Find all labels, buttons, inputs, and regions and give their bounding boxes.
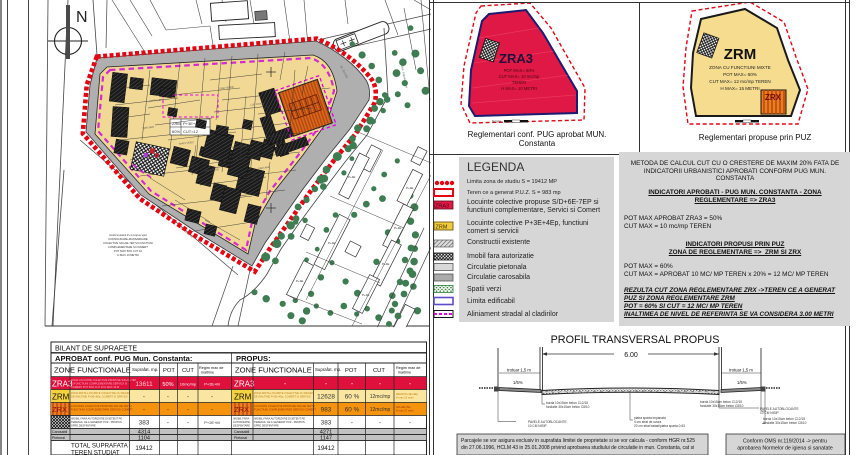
svg-text:Pietonal: Pietonal (234, 436, 247, 440)
svg-text:trotuar 1,5 m: trotuar 1,5 m (729, 368, 753, 373)
svg-text:ZONA CU FUNCTIUNI MIXTE: ZONA CU FUNCTIUNI MIXTE (709, 65, 771, 70)
svg-text:REGIM P+3E+4Ep: REGIM P+3E+4Ep (396, 392, 418, 396)
svg-text:ZONE FUNCTIONALE: ZONE FUNCTIONALE (54, 366, 131, 375)
svg-text:ZRM: ZRM (234, 393, 252, 402)
svg-text:P+2E+M: P+2E+M (204, 420, 220, 425)
svg-text:COMPLEMENTARE SI COMERT: COMPLEMENTARE SI COMERT (108, 245, 148, 249)
svg-text:PROFIL TRANSVERSAL PROPUS: PROFIL TRANSVERSAL PROPUS (551, 334, 720, 346)
svg-text:DE INALTIME P+3E+4Ep, COMERT S: DE INALTIME P+3E+4Ep, COMERT SI SERVICII (71, 395, 128, 399)
svg-text:Suprafat. mp.: Suprafat. mp. (315, 367, 341, 372)
svg-text:-: - (351, 420, 353, 427)
svg-text:N: N (76, 9, 88, 26)
svg-text:ZRM: ZRM (172, 121, 181, 126)
svg-text:P+4E: P+4E (328, 241, 335, 245)
svg-text:APROBAT conf. PUG Mun. Constan: APROBAT conf. PUG Mun. Constanta: (55, 354, 192, 363)
svg-text:TERENUL CE A GENERAT PUZ - PRO: TERENUL CE A GENERAT PUZ - PROPUS (254, 420, 305, 424)
svg-text:TEREN: TEREN (512, 80, 526, 85)
svg-text:ZRX: ZRX (234, 405, 249, 414)
svg-text:-: - (143, 407, 145, 414)
svg-text:SPRE DESFIINTARE: SPRE DESFIINTARE (254, 424, 279, 428)
svg-text:inaltime: inaltime (201, 371, 214, 375)
svg-text:ZRA3: ZRA3 (435, 204, 449, 210)
svg-text:P+4E: P+4E (394, 226, 401, 230)
svg-text:13611: 13611 (135, 381, 153, 388)
svg-text:P+2E+M: P+2E+M (204, 382, 220, 387)
svg-text:H MAX= 10 METRI: H MAX= 10 METRI (501, 86, 537, 91)
svg-text:6.00: 6.00 (624, 352, 638, 359)
svg-text:-: - (187, 420, 189, 427)
svg-text:-: - (187, 407, 189, 414)
svg-text:FUNCTIUNI COMPLEMENTARE SERVIC: FUNCTIUNI COMPLEMENTARE SERVICII COMERT (254, 408, 316, 412)
svg-text:10mc/mp: 10mc/mp (180, 382, 197, 387)
svg-text:50%: 50% (162, 382, 173, 388)
svg-text:Scara: Scara (492, 120, 501, 124)
svg-text:-: - (211, 407, 213, 414)
svg-text:trotuar 1,5 m: trotuar 1,5 m (507, 368, 531, 373)
svg-text:12mc/mp: 12mc/mp (370, 407, 391, 413)
svg-text:-: - (167, 394, 169, 401)
svg-text:20 cm strat balast/piatra spar: 20 cm strat balast/piatra sparta 0-63 (634, 424, 685, 428)
svg-text:ZRA3: ZRA3 (499, 51, 533, 66)
svg-text:-: - (211, 394, 213, 401)
svg-text:60 %: 60 % (345, 407, 360, 414)
svg-text:IMOBIL FARA: IMOBIL FARA (233, 417, 249, 421)
svg-text:CUT=12: CUT=12 (183, 129, 199, 134)
svg-text:din 27.06.1996, HCLM 43 in 25.: din 27.06.1996, HCLM 43 in 25.01.2008 pr… (461, 445, 694, 451)
svg-text:12mc/mp: 12mc/mp (370, 394, 391, 400)
svg-text:Carosabil: Carosabil (52, 430, 67, 434)
svg-text:BILANT DE SUPRAFETE: BILANT DE SUPRAFETE (55, 344, 137, 353)
svg-text:P+4E: P+4E (382, 262, 389, 266)
svg-text:Carosabil: Carosabil (234, 430, 249, 434)
svg-text:Regim max de: Regim max de (396, 366, 420, 370)
svg-text:S/D+6E-7Ep: S/D+6E-7Ep (396, 405, 411, 409)
svg-text:COMERT POT 50% CUT 10 H MAX 10: COMERT POT 50% CUT 10 H MAX 10 M (71, 385, 119, 389)
svg-text:-: - (187, 394, 189, 401)
svg-text:-: - (167, 407, 169, 414)
svg-text:PROPUS:: PROPUS: (236, 354, 271, 363)
svg-text:IMOBIL FARA AUTORIZATIE EXISTE: IMOBIL FARA AUTORIZATIE EXISTENT PE (71, 417, 122, 421)
svg-text:10 CM NISIP: 10 CM NISIP (528, 424, 547, 428)
svg-text:Conform OMS nr.119/2014 -> pen: Conform OMS nr.119/2014 -> pentru (743, 439, 827, 445)
svg-text:ZRA3: ZRA3 (234, 380, 255, 389)
svg-text:inaltime: inaltime (398, 371, 411, 375)
svg-text:CUT MAX= 12 mc/mp TEREN: CUT MAX= 12 mc/mp TEREN (709, 79, 770, 84)
svg-text:Pietonal: Pietonal (52, 436, 65, 440)
svg-text:CONSOLIDARE-MANSARDARE: CONSOLIDARE-MANSARDARE (108, 237, 148, 241)
svg-text:60%: 60% (172, 129, 180, 134)
svg-text:19412: 19412 (317, 445, 335, 452)
svg-text:1/5%: 1/5% (737, 380, 747, 385)
svg-text:fundatie 30x15cm beton C8/10: fundatie 30x15cm beton C8/10 (700, 404, 744, 408)
svg-text:Parcajele se vor asigura exclu: Parcajele se vor asigura exclusiv in sup… (461, 438, 695, 444)
svg-text:19412: 19412 (135, 445, 153, 452)
svg-text:fundatie 30x15cm beton C8/10: fundatie 30x15cm beton C8/10 (763, 421, 807, 425)
svg-text:ZRM: ZRM (724, 46, 757, 63)
svg-text:ZRM: ZRM (436, 225, 448, 231)
svg-text:10 CM NISIP: 10 CM NISIP (760, 411, 779, 415)
svg-text:Reglementari propuse prin PUZ: Reglementari propuse prin PUZ (699, 133, 812, 142)
svg-text:aprobarea Normelor de igiena s: aprobarea Normelor de igiena si sanatate (737, 446, 833, 452)
svg-text:12628: 12628 (317, 394, 335, 401)
svg-text:TOTAL SUPRAFATA: TOTAL SUPRAFATA (71, 443, 129, 450)
svg-text:P+4E: P+4E (362, 293, 369, 297)
svg-text:SPRE DESFIINTARE: SPRE DESFIINTARE (71, 424, 96, 428)
svg-text:CUT: CUT (182, 368, 194, 374)
svg-text:P+4E: P+4E (296, 279, 303, 283)
svg-text:H max 27 metri: H max 27 metri (396, 409, 414, 413)
svg-text:ZRM: ZRM (52, 393, 70, 402)
svg-text:983: 983 (321, 407, 332, 414)
svg-text:ZONA MIXTA-LOCUINTE COLECTIVE: ZONA MIXTA-LOCUINTE COLECTIVE CU REGIM (71, 391, 130, 395)
svg-text:Regim max de: Regim max de (199, 366, 223, 370)
svg-text:POT: POT (163, 368, 175, 374)
svg-text:60 %: 60 % (345, 394, 360, 401)
svg-text:Imobil existent P+1 propus spr: Imobil existent P+1 propus spre (109, 233, 147, 237)
svg-text:-: - (379, 420, 381, 427)
svg-text:ZONA MIXTA-LOCUINTE COLECTIVE: ZONA MIXTA-LOCUINTE COLECTIVE CU REGIM (254, 391, 313, 395)
svg-text:ZRX: ZRX (765, 93, 782, 102)
svg-text:1/5%: 1/5% (513, 380, 523, 385)
svg-text:TEREN STUDIAT: TEREN STUDIAT (71, 450, 120, 455)
svg-text:-: - (409, 420, 411, 427)
svg-text:-: - (167, 420, 169, 427)
svg-text:LOCUINTE COLECTIVE PROPUSE S/D: LOCUINTE COLECTIVE PROPUSE S/D+6E-7EP SI (254, 404, 315, 408)
svg-text:CUT MAX= 10 mc/mp: CUT MAX= 10 mc/mp (499, 74, 540, 79)
svg-text:POT MAX 50% CUT 10: POT MAX 50% CUT 10 (114, 249, 143, 253)
svg-text:SI FUNCTIUNI COMPLEMENTARE SER: SI FUNCTIUNI COMPLEMENTARE SERVICII SI (71, 382, 128, 386)
svg-text:Constanta: Constanta (519, 139, 556, 148)
svg-text:COLECTIVE S/D+6E-7EP SI FUNCTI: COLECTIVE S/D+6E-7EP SI FUNCTIUNI (103, 241, 153, 245)
svg-text:CUT: CUT (373, 368, 385, 374)
svg-text:IMOBIL FARA AUTORIZATIE EXISTE: IMOBIL FARA AUTORIZATIE EXISTENT PE (254, 417, 305, 421)
svg-text:P+4E: P+4E (406, 186, 413, 190)
svg-text:Suprafat. mp.: Suprafat. mp. (132, 367, 158, 372)
svg-text:fundatie 30x15cm beton C8/10: fundatie 30x15cm beton C8/10 (546, 405, 590, 409)
svg-text:LOCUINTE COLECTIVE PROPUSE S/D: LOCUINTE COLECTIVE PROPUSE S/D+6E-7EP SI (71, 404, 132, 408)
svg-text:DESFIINTARE: DESFIINTARE (233, 424, 250, 428)
svg-text:H MAX 10 METRI: H MAX 10 METRI (117, 253, 139, 257)
svg-text:H MAX= 15 METRI: H MAX= 15 METRI (720, 86, 759, 91)
svg-text:POT MAX= 50%: POT MAX= 50% (504, 68, 535, 73)
svg-text:383: 383 (139, 420, 150, 427)
svg-text:ZONE FUNCTIONALE: ZONE FUNCTIONALE (235, 366, 312, 375)
svg-text:ZONA LOCUINTE COLECTIVE PROPUS: ZONA LOCUINTE COLECTIVE PROPUSE S/D+6E-7… (71, 378, 136, 382)
svg-text:AUTORIZATIE: AUTORIZATIE (233, 420, 250, 424)
svg-text:P+4E: P+4E (348, 175, 355, 179)
svg-text:DE INALTIME P+3E+4Ep, COMERT S: DE INALTIME P+3E+4Ep, COMERT SI SERVICII (254, 395, 311, 399)
svg-text:Reglementari conf. PUG aprobat: Reglementari conf. PUG aprobat MUN. (468, 130, 607, 139)
svg-text:TERENUL CE A GENERAT PUZ - PRO: TERENUL CE A GENERAT PUZ - PROPUS (71, 420, 122, 424)
svg-text:-: - (143, 394, 145, 401)
svg-text:ZRX: ZRX (52, 405, 67, 414)
svg-text:H max 15 metri: H max 15 metri (396, 396, 414, 400)
svg-text:383: 383 (321, 420, 332, 427)
svg-text:POT MAX= 60%: POT MAX= 60% (723, 72, 757, 77)
svg-text:POT: POT (345, 368, 357, 374)
svg-text:FUNCTIUNI COMPLEMENTARE SERVIC: FUNCTIUNI COMPLEMENTARE SERVICII COMERT (71, 408, 133, 412)
